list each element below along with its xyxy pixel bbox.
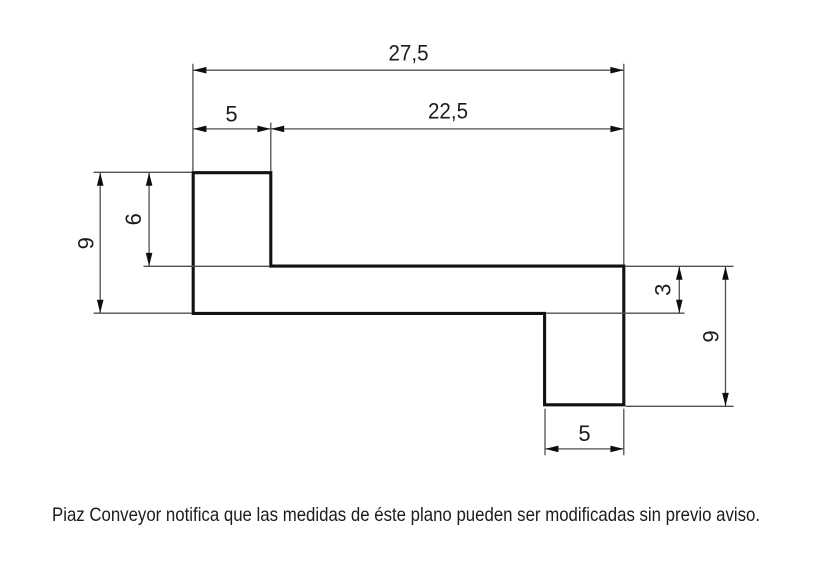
svg-text:3: 3 [650,284,675,296]
svg-text:9: 9 [73,237,98,249]
svg-text:22,5: 22,5 [428,98,468,123]
svg-text:9: 9 [699,330,724,342]
svg-text:5: 5 [578,421,590,446]
svg-text:27,5: 27,5 [389,41,429,66]
svg-text:5: 5 [225,102,237,127]
svg-text:6: 6 [121,213,146,225]
svg-text:Piaz Conveyor notifica que las: Piaz Conveyor notifica que las medidas d… [52,504,760,526]
